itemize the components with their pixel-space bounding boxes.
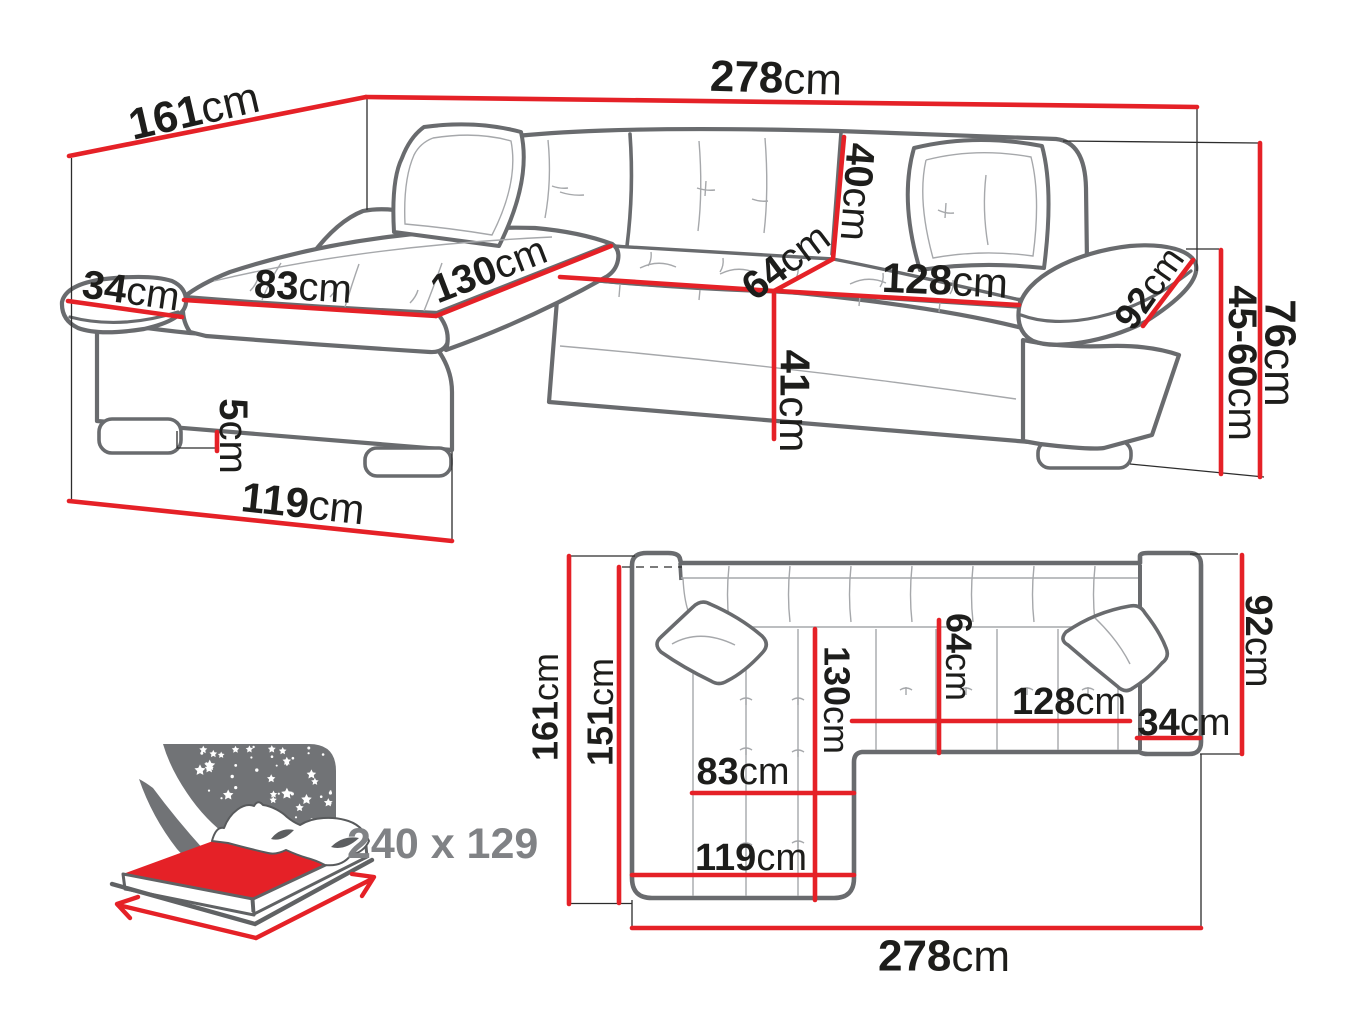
svg-text:34cm: 34cm [1138,702,1231,744]
svg-text:240 x 129: 240 x 129 [347,820,538,868]
svg-text:92cm: 92cm [1237,595,1279,688]
svg-text:128cm: 128cm [1012,681,1126,723]
svg-text:119cm: 119cm [695,837,807,879]
svg-text:278cm: 278cm [709,52,842,104]
svg-text:278cm: 278cm [878,932,1010,981]
svg-text:128cm: 128cm [881,254,1009,306]
svg-text:40cm: 40cm [832,142,883,243]
svg-text:161cm: 161cm [525,653,566,761]
svg-text:76cm: 76cm [1256,299,1305,407]
svg-text:151cm: 151cm [580,658,621,766]
svg-text:83cm: 83cm [697,751,790,793]
svg-text:130cm: 130cm [817,646,858,754]
svg-text:41cm: 41cm [772,350,819,453]
svg-text:5cm: 5cm [211,398,255,474]
svg-text:83cm: 83cm [253,262,353,312]
svg-text:64cm: 64cm [939,613,980,701]
